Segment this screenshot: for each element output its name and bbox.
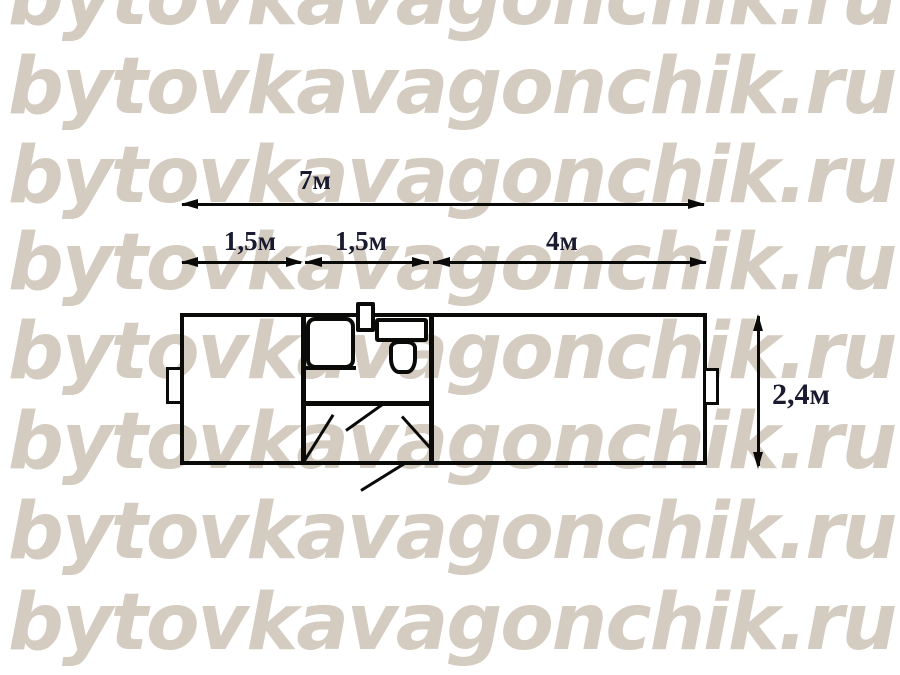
- dim-line-section-3: [433, 261, 706, 264]
- cabin-outer-wall: [180, 313, 707, 465]
- arrowhead-left-icon: [181, 199, 198, 209]
- dim-label-section-3: 4м: [534, 228, 590, 255]
- arrowhead-right-icon: [690, 257, 707, 267]
- dim-label-section-1: 1,5м: [220, 228, 280, 255]
- arrowhead-down-icon: [753, 452, 763, 469]
- left-window: [166, 367, 183, 404]
- water-heater: [356, 302, 375, 332]
- entrance-door: [360, 461, 407, 491]
- dim-label-total: 7м: [287, 167, 343, 194]
- dim-line-section-1: [182, 261, 301, 264]
- arrowhead-left-icon: [181, 257, 198, 267]
- toilet-bowl: [389, 340, 417, 374]
- dim-line-height: [757, 316, 760, 466]
- dim-line-section-2: [305, 261, 429, 264]
- interior-wall-right: [429, 315, 434, 463]
- arrowhead-up-icon: [753, 314, 763, 331]
- arrowhead-right-icon: [412, 257, 429, 267]
- interior-wall-hall: [303, 401, 433, 406]
- toilet-cistern: [375, 318, 428, 342]
- arrowhead-right-icon: [688, 199, 705, 209]
- dim-label-section-2: 1,5м: [331, 228, 391, 255]
- dim-label-height: 2,4м: [772, 380, 830, 410]
- cabin-floor-plan: 7м 1,5м 1,5м 4м: [0, 0, 900, 675]
- washbasin: [306, 317, 355, 369]
- arrowhead-left-icon: [305, 257, 322, 267]
- right-window: [703, 368, 719, 405]
- diagram-canvas: bytovkavagonchik.ru bytovkavagonchik.ru …: [0, 0, 900, 675]
- arrowhead-right-icon: [286, 257, 303, 267]
- dim-line-total: [182, 203, 704, 206]
- arrowhead-left-icon: [433, 257, 450, 267]
